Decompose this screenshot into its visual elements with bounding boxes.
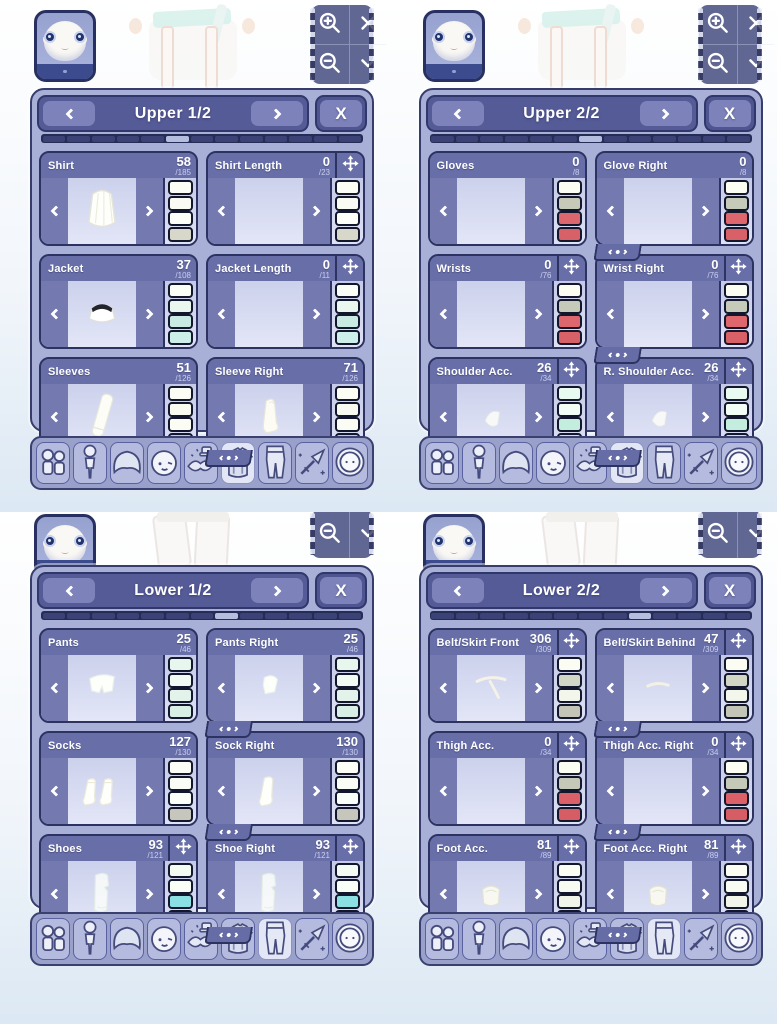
panel-title: Lower 1/2: [99, 582, 247, 600]
item-section-body: [41, 178, 196, 244]
move-adjust-button[interactable]: [724, 359, 752, 384]
item-index: 130: [336, 735, 358, 748]
color-swatch[interactable]: [335, 314, 360, 329]
move-adjust-button[interactable]: [724, 836, 752, 861]
prev-item-button[interactable]: [430, 758, 457, 824]
mirror-copy-button[interactable]: [204, 824, 253, 841]
next-item-button[interactable]: [136, 758, 163, 824]
next-page-button[interactable]: [640, 101, 692, 126]
item-total: /34: [540, 749, 551, 757]
prev-item-button[interactable]: [208, 655, 235, 721]
color-swatch[interactable]: [335, 211, 360, 226]
next-item-button[interactable]: [303, 655, 330, 721]
color-swatch[interactable]: [557, 417, 582, 432]
item-count: 127 /130: [167, 733, 196, 758]
item-label: Sleeve Right: [208, 366, 283, 378]
quadrant-lower-1-2: Lower 1/2 X Pants 25 /46: [0, 512, 389, 1024]
color-swatch[interactable]: [335, 863, 360, 878]
character-preview: [498, 0, 668, 90]
next-item-button[interactable]: [525, 655, 552, 721]
color-swatch[interactable]: [168, 283, 193, 298]
tab-other[interactable]: [332, 918, 368, 960]
avatar[interactable]: [34, 10, 96, 82]
character-part: [582, 513, 619, 569]
prev-item-button[interactable]: [597, 281, 624, 347]
presets-icon: [38, 919, 68, 960]
color-swatch[interactable]: [557, 776, 582, 791]
color-swatch[interactable]: [724, 673, 749, 688]
tab-hair[interactable]: [110, 442, 144, 484]
prev-page-button[interactable]: [43, 101, 95, 126]
progress-segment: [67, 136, 90, 142]
collapse-button[interactable]: [350, 45, 386, 85]
item-section-body: [597, 178, 752, 244]
page-progress-bar: [430, 611, 752, 620]
color-swatch[interactable]: [335, 657, 360, 672]
mirror-copy-button[interactable]: [204, 721, 253, 738]
item-index: 0: [711, 258, 718, 271]
prev-item-button[interactable]: [208, 758, 235, 824]
next-item-button[interactable]: [692, 178, 719, 244]
tab-other[interactable]: [332, 442, 368, 484]
color-swatch[interactable]: [557, 211, 582, 226]
chevron-left-icon: [607, 726, 613, 732]
chevron-right-icon: [233, 726, 239, 732]
color-swatch[interactable]: [724, 180, 749, 195]
item-section-thigh-acc-right: Thigh Acc. Right 0 /34: [595, 731, 754, 826]
color-swatch[interactable]: [557, 314, 582, 329]
prev-item-button[interactable]: [597, 655, 624, 721]
color-swatch[interactable]: [335, 807, 360, 822]
avatar-eye: [433, 535, 445, 547]
next-item-button[interactable]: [525, 281, 552, 347]
item-section-body: [41, 758, 196, 824]
chevron-right-icon: [658, 585, 669, 596]
progress-segment: [653, 613, 676, 619]
item-label: Jacket: [41, 263, 83, 275]
color-swatch-column: [719, 758, 752, 824]
avatar-eye: [74, 31, 86, 43]
zoom-out-button[interactable]: [699, 45, 738, 85]
color-swatch[interactable]: [557, 807, 582, 822]
chevron-right-icon: [531, 785, 542, 796]
move-adjust-button[interactable]: [557, 836, 585, 861]
character-part: [205, 26, 218, 90]
zoom-out-button[interactable]: [311, 45, 350, 85]
color-swatch[interactable]: [557, 879, 582, 894]
item-section-frame: Wrists 0 /76: [428, 254, 587, 349]
prev-item-button[interactable]: [430, 655, 457, 721]
color-swatch[interactable]: [557, 894, 582, 909]
progress-segment: [191, 136, 214, 142]
color-swatch[interactable]: [724, 688, 749, 703]
next-page-button[interactable]: [640, 578, 692, 603]
zoom-in-button[interactable]: [311, 5, 350, 45]
mirror-copy-button[interactable]: [593, 824, 642, 841]
mirror-copy-button[interactable]: [593, 927, 642, 944]
zoom-in-icon: [317, 10, 343, 39]
color-swatch[interactable]: [168, 776, 193, 791]
chevron-right-icon: [621, 352, 627, 358]
color-swatch[interactable]: [557, 688, 582, 703]
progress-segment: [554, 136, 577, 142]
tab-weapon[interactable]: [295, 442, 329, 484]
tab-presets[interactable]: [36, 918, 70, 960]
tab-hair[interactable]: [110, 918, 144, 960]
next-item-button[interactable]: [303, 758, 330, 824]
avatar[interactable]: [423, 10, 485, 82]
tab-presets[interactable]: [36, 442, 70, 484]
tab-hair[interactable]: [499, 442, 533, 484]
color-swatch[interactable]: [724, 402, 749, 417]
item-section-frame: Jacket 37 /108: [39, 254, 198, 349]
tab-presets[interactable]: [425, 442, 459, 484]
next-item-button[interactable]: [303, 281, 330, 347]
color-swatch[interactable]: [335, 673, 360, 688]
color-swatch[interactable]: [335, 879, 360, 894]
color-swatch[interactable]: [724, 879, 749, 894]
color-swatch[interactable]: [168, 760, 193, 775]
item-count: 93 /121: [145, 836, 168, 861]
chevron-left-icon: [607, 455, 613, 461]
next-page-button[interactable]: [251, 101, 303, 126]
color-swatch[interactable]: [335, 894, 360, 909]
bottom-clothes-icon: [261, 443, 289, 484]
collapse-button[interactable]: [738, 45, 774, 85]
mirror-copy-button[interactable]: [593, 450, 642, 467]
tab-weapon[interactable]: [295, 918, 329, 960]
color-swatch[interactable]: [168, 196, 193, 211]
color-swatch[interactable]: [724, 760, 749, 775]
close-button[interactable]: [350, 5, 386, 45]
color-swatch[interactable]: [557, 299, 582, 314]
item-preview: [457, 281, 525, 347]
item-section-gloves: Gloves 0 /8: [428, 151, 587, 246]
tab-body[interactable]: [73, 918, 107, 960]
color-swatch[interactable]: [335, 227, 360, 242]
color-swatch[interactable]: [168, 657, 193, 672]
color-swatch[interactable]: [168, 299, 193, 314]
collapse-icon: [356, 521, 380, 548]
tab-weapon[interactable]: [684, 442, 718, 484]
item-total: /23: [319, 169, 330, 177]
color-swatch[interactable]: [335, 402, 360, 417]
color-swatch[interactable]: [557, 657, 582, 672]
color-swatch[interactable]: [335, 386, 360, 401]
close-button[interactable]: X: [704, 572, 756, 609]
color-swatch[interactable]: [724, 894, 749, 909]
tab-face[interactable]: [147, 918, 181, 960]
character-part: [149, 20, 237, 80]
color-swatch[interactable]: [168, 791, 193, 806]
character-part: [597, 3, 616, 44]
tab-hair[interactable]: [499, 918, 533, 960]
mirror-copy-button[interactable]: [204, 450, 253, 467]
next-item-button[interactable]: [136, 281, 163, 347]
collapse-button[interactable]: [738, 512, 774, 558]
item-section-header: Socks 127 /130: [41, 733, 196, 758]
hair-icon: [500, 921, 532, 958]
character-part: [157, 512, 229, 522]
color-swatch[interactable]: [168, 386, 193, 401]
color-swatch[interactable]: [335, 196, 360, 211]
color-swatch[interactable]: [724, 386, 749, 401]
move-adjust-button[interactable]: [724, 256, 752, 281]
move-adjust-button[interactable]: [724, 733, 752, 758]
tab-other[interactable]: [721, 918, 757, 960]
color-swatch[interactable]: [168, 807, 193, 822]
zoom-out-button[interactable]: [699, 512, 738, 558]
chevron-left-icon: [217, 205, 228, 216]
weapon-icon: [685, 920, 717, 959]
color-swatch[interactable]: [335, 791, 360, 806]
color-swatch[interactable]: [168, 314, 193, 329]
color-swatch-column: [163, 178, 196, 244]
item-label: R. Shoulder Acc.: [597, 366, 695, 378]
chevron-left-icon: [219, 726, 225, 732]
chevron-right-icon: [309, 308, 320, 319]
progress-segment: [703, 613, 726, 619]
next-item-button[interactable]: [692, 758, 719, 824]
item-preview: [235, 178, 303, 244]
color-swatch[interactable]: [557, 760, 582, 775]
move-adjust-button[interactable]: [168, 836, 196, 861]
color-swatch[interactable]: [724, 299, 749, 314]
tab-body[interactable]: [462, 918, 496, 960]
item-section-body: [208, 178, 363, 244]
collapse-button[interactable]: [350, 512, 386, 558]
color-swatch[interactable]: [168, 402, 193, 417]
color-swatch[interactable]: [724, 283, 749, 298]
item-total: /8: [573, 169, 580, 177]
item-preview: [68, 178, 136, 244]
next-item-button[interactable]: [692, 281, 719, 347]
color-swatch[interactable]: [724, 211, 749, 226]
tab-bottom-clothes[interactable]: [258, 442, 292, 484]
color-swatch[interactable]: [557, 386, 582, 401]
next-item-button[interactable]: [303, 178, 330, 244]
tab-face[interactable]: [536, 918, 570, 960]
close-button[interactable]: X: [315, 572, 367, 609]
tab-weapon[interactable]: [684, 918, 718, 960]
prev-item-button[interactable]: [430, 281, 457, 347]
chevron-left-icon: [217, 308, 228, 319]
item-index: 25: [177, 632, 191, 645]
tab-bottom-clothes[interactable]: [258, 918, 292, 960]
item-count: 81 /89: [535, 836, 556, 861]
prev-item-button[interactable]: [597, 178, 624, 244]
prev-item-button[interactable]: [208, 281, 235, 347]
color-swatch[interactable]: [557, 227, 582, 242]
chevron-left-icon: [65, 585, 76, 596]
color-swatch[interactable]: [335, 704, 360, 719]
move-adjust-button[interactable]: [335, 256, 363, 281]
character-part: [538, 20, 626, 80]
color-swatch[interactable]: [168, 211, 193, 226]
prev-page-button[interactable]: [432, 578, 484, 603]
color-swatch[interactable]: [557, 704, 582, 719]
move-adjust-button[interactable]: [335, 836, 363, 861]
mirror-copy-button[interactable]: [204, 927, 253, 944]
move-adjust-button[interactable]: [557, 256, 585, 281]
color-swatch[interactable]: [168, 180, 193, 195]
color-swatch[interactable]: [335, 283, 360, 298]
color-swatch[interactable]: [335, 299, 360, 314]
color-swatch[interactable]: [168, 673, 193, 688]
avatar-eye: [433, 31, 445, 43]
prev-page-button[interactable]: [43, 578, 95, 603]
color-swatch[interactable]: [724, 330, 749, 345]
color-swatch[interactable]: [557, 791, 582, 806]
progress-segment: [265, 613, 288, 619]
color-swatch[interactable]: [724, 807, 749, 822]
color-swatch[interactable]: [557, 196, 582, 211]
progress-segment: [554, 613, 577, 619]
tab-face[interactable]: [536, 442, 570, 484]
tab-bottom-clothes[interactable]: [647, 442, 681, 484]
tab-presets[interactable]: [425, 918, 459, 960]
chevron-right-icon: [142, 205, 153, 216]
color-swatch[interactable]: [168, 704, 193, 719]
move-adjust-button[interactable]: [557, 733, 585, 758]
character-part: [594, 26, 607, 90]
chevron-right-icon: [698, 411, 709, 422]
item-section-frame: Socks 127 /130: [39, 731, 198, 826]
color-swatch[interactable]: [557, 283, 582, 298]
film-strip-edge: [698, 513, 703, 555]
color-swatch[interactable]: [168, 330, 193, 345]
tab-body[interactable]: [73, 442, 107, 484]
color-swatch-column: [719, 281, 752, 347]
color-swatch[interactable]: [335, 180, 360, 195]
color-swatch[interactable]: [724, 791, 749, 806]
dot-icon: [615, 250, 620, 254]
color-swatch[interactable]: [335, 776, 360, 791]
color-swatch[interactable]: [335, 417, 360, 432]
item-label: Thigh Acc.: [430, 740, 495, 752]
mirror-copy-button[interactable]: [593, 721, 642, 738]
color-swatch[interactable]: [724, 417, 749, 432]
color-swatch[interactable]: [724, 776, 749, 791]
camera-controls: [311, 5, 373, 84]
progress-segment: [678, 613, 701, 619]
prev-item-button[interactable]: [41, 758, 68, 824]
color-swatch[interactable]: [168, 417, 193, 432]
zoom-out-button[interactable]: [311, 512, 350, 558]
item-label: Wrists: [430, 263, 472, 275]
color-swatch[interactable]: [557, 402, 582, 417]
item-section-header: Shirt Length 0 /23: [208, 153, 363, 178]
item-label: Jacket Length: [208, 263, 292, 275]
next-item-button[interactable]: [525, 758, 552, 824]
color-swatch[interactable]: [168, 879, 193, 894]
next-item-button[interactable]: [136, 655, 163, 721]
color-swatch[interactable]: [557, 673, 582, 688]
category-tab-bar: [419, 436, 763, 490]
color-swatch[interactable]: [335, 688, 360, 703]
close-button-label: X: [709, 577, 751, 604]
color-swatch[interactable]: [724, 227, 749, 242]
color-swatch[interactable]: [335, 760, 360, 775]
character-part: [541, 8, 620, 28]
color-swatch[interactable]: [724, 657, 749, 672]
mirror-copy-button[interactable]: [593, 244, 642, 261]
character-part: [550, 26, 563, 90]
color-swatch[interactable]: [557, 330, 582, 345]
close-icon: [357, 12, 379, 37]
color-swatch[interactable]: [557, 180, 582, 195]
item-count: 58 /185: [173, 153, 196, 178]
prev-page-button[interactable]: [432, 101, 484, 126]
color-swatch[interactable]: [335, 330, 360, 345]
color-swatch[interactable]: [168, 227, 193, 242]
prev-item-button[interactable]: [208, 178, 235, 244]
panel-header-bar: Lower 1/2: [37, 572, 309, 609]
chevron-right-icon: [142, 682, 153, 693]
move-adjust-button[interactable]: [557, 359, 585, 384]
progress-segment: [191, 613, 214, 619]
move-icon: [730, 735, 747, 757]
panel-header-bar: Upper 1/2: [37, 95, 309, 132]
item-section-frame: Glove Right 0 /8: [595, 151, 754, 246]
color-swatch[interactable]: [168, 863, 193, 878]
progress-segment: [579, 613, 602, 619]
next-item-button[interactable]: [525, 178, 552, 244]
avatar-eye: [463, 31, 475, 43]
color-swatch-column: [330, 178, 363, 244]
color-swatch[interactable]: [724, 704, 749, 719]
mirror-copy-button[interactable]: [593, 347, 642, 364]
zoom-in-button[interactable]: [699, 5, 738, 45]
move-adjust-button[interactable]: [557, 630, 585, 655]
next-item-button[interactable]: [136, 178, 163, 244]
prev-item-button[interactable]: [430, 178, 457, 244]
item-label: Shirt: [41, 160, 74, 172]
close-button[interactable]: X: [704, 95, 756, 132]
prev-item-button[interactable]: [41, 281, 68, 347]
color-swatch[interactable]: [168, 894, 193, 909]
next-page-button[interactable]: [251, 578, 303, 603]
prev-item-button[interactable]: [41, 178, 68, 244]
tab-other[interactable]: [721, 442, 757, 484]
tab-body[interactable]: [462, 442, 496, 484]
bottom-clothes-icon: [650, 443, 678, 484]
prev-item-button[interactable]: [41, 655, 68, 721]
prev-item-button[interactable]: [597, 758, 624, 824]
dot-icon: [226, 727, 231, 731]
move-adjust-button[interactable]: [335, 153, 363, 178]
color-swatch[interactable]: [724, 196, 749, 211]
next-item-button[interactable]: [692, 655, 719, 721]
close-button[interactable]: X: [315, 95, 367, 132]
color-swatch[interactable]: [724, 863, 749, 878]
color-swatch[interactable]: [168, 688, 193, 703]
color-swatch[interactable]: [557, 863, 582, 878]
move-icon: [342, 838, 359, 860]
color-swatch[interactable]: [724, 314, 749, 329]
progress-segment: [92, 613, 115, 619]
weapon-icon: [685, 444, 717, 483]
tab-face[interactable]: [147, 442, 181, 484]
item-index: 0: [323, 155, 330, 168]
avatar-mouth: [450, 46, 457, 50]
move-adjust-button[interactable]: [724, 630, 752, 655]
item-preview: [68, 758, 136, 824]
item-label: Sock Right: [208, 740, 274, 752]
close-button[interactable]: [738, 5, 774, 45]
tab-bottom-clothes[interactable]: [647, 918, 681, 960]
chevron-left-icon: [217, 411, 228, 422]
